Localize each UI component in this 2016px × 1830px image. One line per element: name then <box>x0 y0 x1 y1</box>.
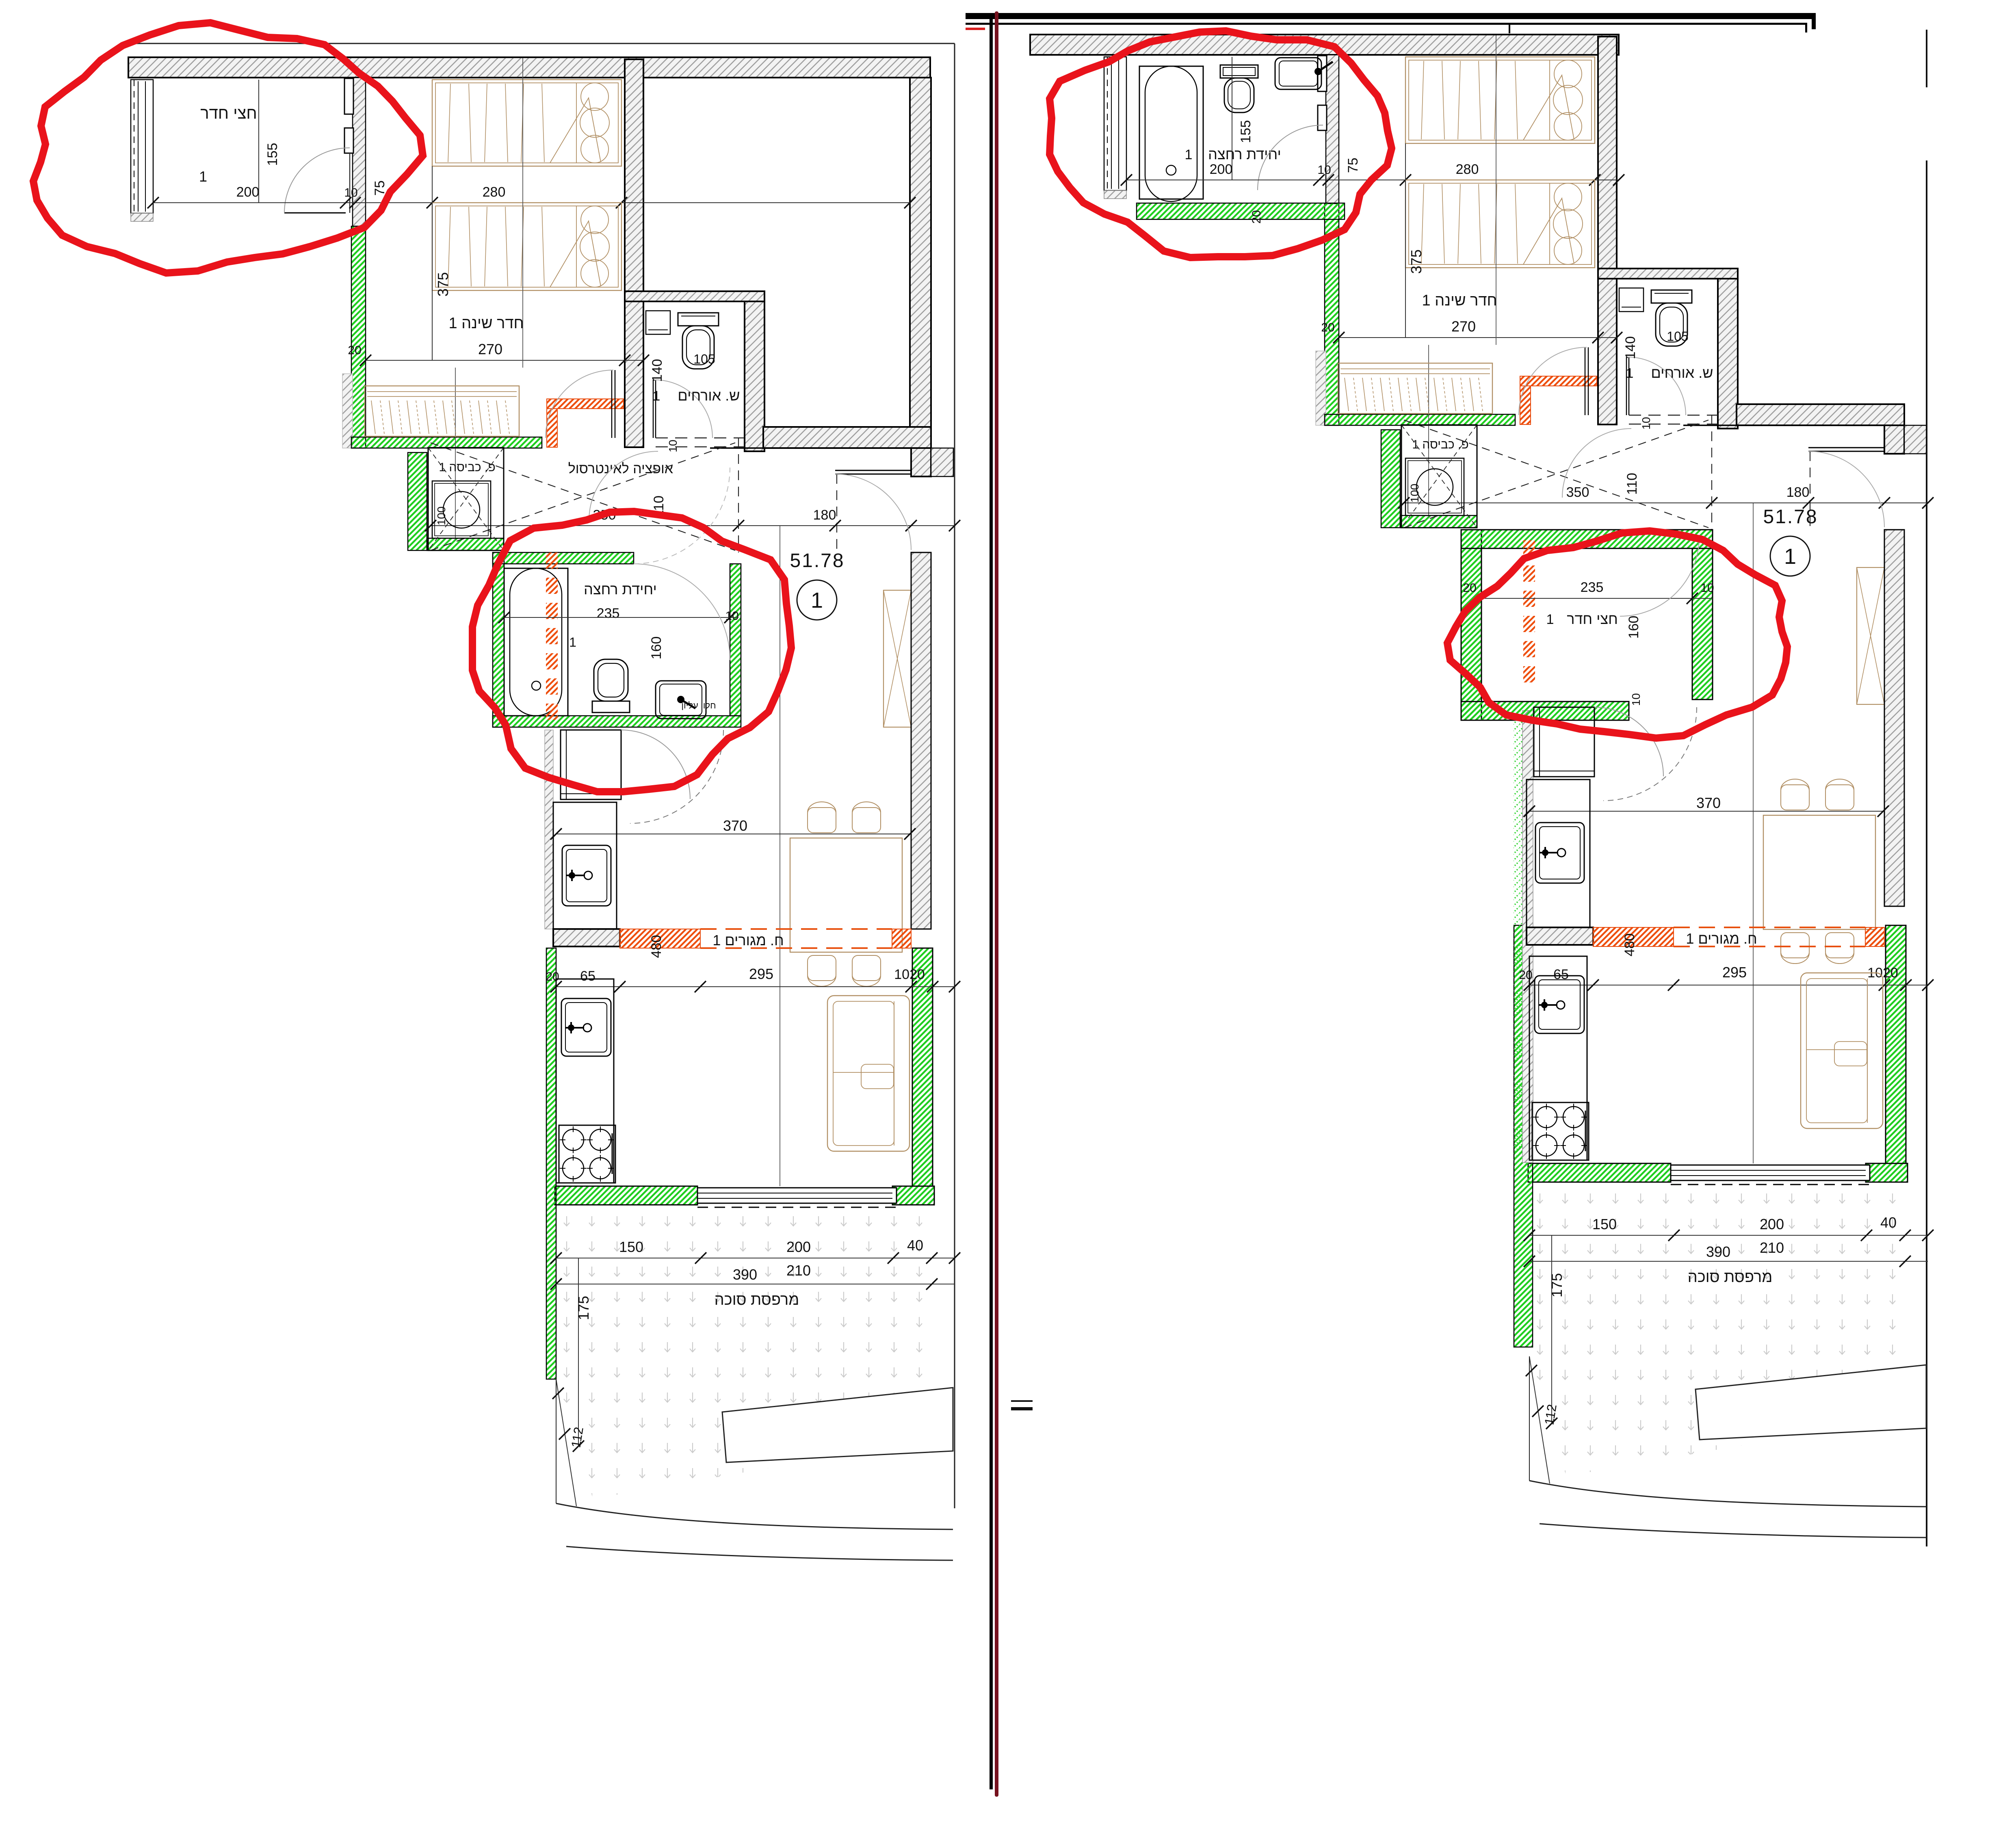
svg-text:1020: 1020 <box>894 967 925 982</box>
svg-text:פ. כביסה 1: פ. כביסה 1 <box>1412 438 1468 451</box>
svg-text:295: 295 <box>1722 964 1747 981</box>
svg-text:160: 160 <box>649 637 664 660</box>
svg-text:140: 140 <box>650 359 665 382</box>
svg-text:51.78: 51.78 <box>790 550 845 572</box>
svg-text:210: 210 <box>1760 1239 1784 1256</box>
svg-text:ח. מגורים 1: ח. מגורים 1 <box>712 932 784 949</box>
svg-text:180: 180 <box>813 507 836 523</box>
svg-text:1: 1 <box>811 588 823 613</box>
svg-text:375: 375 <box>1408 249 1425 274</box>
svg-text:100: 100 <box>435 507 448 526</box>
svg-text:370: 370 <box>723 817 747 834</box>
svg-text:20: 20 <box>1321 321 1334 334</box>
svg-text:10: 10 <box>1630 693 1642 706</box>
svg-text:ח. מגורים 1: ח. מגורים 1 <box>1686 930 1757 947</box>
svg-text:פ. כביסה 1: פ. כביסה 1 <box>439 461 495 474</box>
svg-text:200: 200 <box>786 1239 811 1255</box>
svg-text:1: 1 <box>1784 544 1796 569</box>
svg-text:חצי חדר: חצי חדר <box>200 104 257 122</box>
svg-text:235: 235 <box>1581 580 1604 595</box>
svg-text:270: 270 <box>478 341 502 357</box>
svg-text:155: 155 <box>1238 120 1254 143</box>
svg-text:חדר שינה 1: חדר שינה 1 <box>448 315 524 332</box>
svg-text:ש. אורחים: ש. אורחים <box>1651 364 1713 381</box>
svg-text:180: 180 <box>1786 485 1810 500</box>
svg-text:1: 1 <box>1185 147 1193 162</box>
svg-text:20: 20 <box>1519 968 1532 982</box>
svg-text:20: 20 <box>1463 581 1476 595</box>
svg-text:חצי חדר: חצי חדר <box>1567 611 1618 627</box>
svg-text:140: 140 <box>1623 336 1638 360</box>
svg-text:40: 40 <box>1880 1214 1897 1231</box>
svg-text:480: 480 <box>649 935 664 958</box>
svg-text:חלון עליון: חלון עליון <box>681 700 716 710</box>
svg-text:105: 105 <box>693 352 715 366</box>
svg-text:חדר שינה 1: חדר שינה 1 <box>1422 292 1497 309</box>
svg-text:20: 20 <box>546 970 559 983</box>
svg-text:40: 40 <box>907 1237 923 1254</box>
svg-text:175: 175 <box>1548 1273 1565 1297</box>
svg-text:210: 210 <box>786 1262 811 1279</box>
svg-text:10: 10 <box>667 440 679 452</box>
svg-text:235: 235 <box>597 606 620 621</box>
svg-text:150: 150 <box>1592 1216 1617 1232</box>
svg-text:280: 280 <box>483 184 506 200</box>
svg-text:ש. אורחים: ש. אורחים <box>678 387 740 404</box>
svg-text:1: 1 <box>199 168 207 185</box>
svg-text:160: 160 <box>1626 616 1641 639</box>
svg-text:51.78: 51.78 <box>1763 506 1818 528</box>
svg-text:10: 10 <box>1317 163 1331 177</box>
svg-text:מרפסת סוכה: מרפסת סוכה <box>715 1291 799 1308</box>
svg-text:375: 375 <box>435 272 451 297</box>
svg-text:280: 280 <box>1456 162 1479 177</box>
svg-text:1: 1 <box>569 635 576 650</box>
svg-text:175: 175 <box>575 1296 592 1320</box>
svg-text:מרפסת סוכה: מרפסת סוכה <box>1688 1269 1773 1286</box>
svg-text:75: 75 <box>1345 158 1361 173</box>
svg-text:10: 10 <box>1640 417 1652 429</box>
svg-text:370: 370 <box>1696 795 1721 811</box>
svg-text:10: 10 <box>1700 581 1714 595</box>
svg-text:20: 20 <box>348 344 361 357</box>
svg-text:200: 200 <box>1760 1216 1784 1232</box>
svg-text:20: 20 <box>1250 210 1263 223</box>
svg-text:350: 350 <box>1566 485 1589 500</box>
svg-text:155: 155 <box>265 143 280 166</box>
svg-text:270: 270 <box>1451 318 1476 335</box>
svg-text:אופציה לאינטרסול: אופציה לאינטרסול <box>568 461 673 476</box>
svg-text:1: 1 <box>653 388 660 404</box>
svg-text:200: 200 <box>236 184 260 200</box>
svg-text:יחידת רחצה: יחידת רחצה <box>1208 146 1281 162</box>
svg-text:200: 200 <box>1210 162 1233 177</box>
svg-text:יחידת רחצה: יחידת רחצה <box>584 581 657 598</box>
svg-text:105: 105 <box>1667 329 1688 344</box>
svg-text:1: 1 <box>1546 612 1554 627</box>
svg-text:390: 390 <box>1706 1243 1730 1260</box>
svg-text:1: 1 <box>1626 366 1634 381</box>
svg-text:10: 10 <box>344 186 357 199</box>
svg-text:65: 65 <box>580 968 595 984</box>
svg-text:100: 100 <box>1408 484 1421 503</box>
svg-text:150: 150 <box>619 1239 643 1255</box>
svg-text:390: 390 <box>733 1266 757 1283</box>
svg-text:295: 295 <box>749 966 773 982</box>
svg-text:480: 480 <box>1622 933 1637 957</box>
svg-text:75: 75 <box>372 180 388 196</box>
svg-text:110: 110 <box>1624 473 1640 495</box>
